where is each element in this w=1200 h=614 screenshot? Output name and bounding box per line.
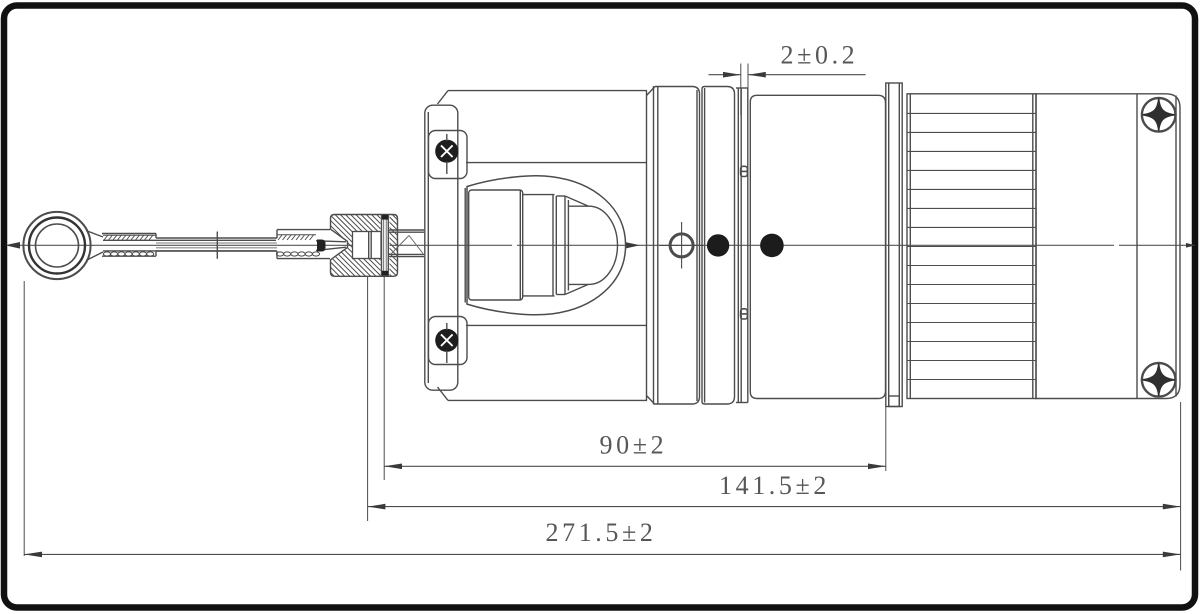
svg-text:271.5±2: 271.5±2	[546, 518, 657, 547]
svg-text:2±0.2: 2±0.2	[781, 41, 859, 70]
svg-text:141.5±2: 141.5±2	[719, 471, 830, 500]
svg-text:90±2: 90±2	[600, 431, 668, 460]
